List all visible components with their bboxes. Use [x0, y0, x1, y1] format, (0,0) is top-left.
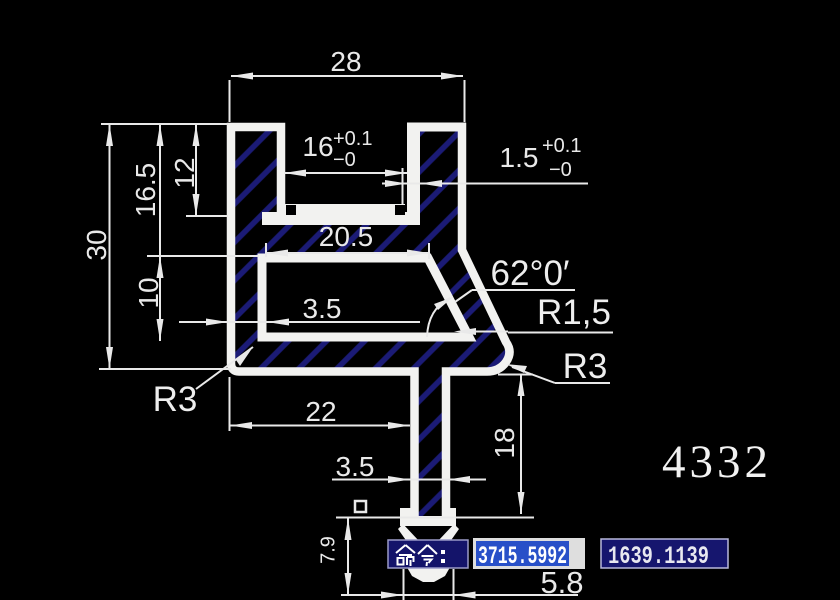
- svg-text:3.5: 3.5: [303, 293, 342, 324]
- svg-text:R1,5: R1,5: [537, 293, 611, 332]
- svg-text:10: 10: [133, 277, 164, 308]
- svg-text:4332: 4332: [662, 436, 772, 488]
- svg-text:20.5: 20.5: [319, 221, 374, 252]
- svg-text:1639.1139: 1639.1139: [608, 542, 709, 571]
- svg-text:−0: −0: [549, 159, 572, 181]
- svg-text:3715.5992: 3715.5992: [478, 542, 567, 571]
- svg-text:30: 30: [81, 229, 112, 260]
- svg-text:28: 28: [330, 46, 361, 77]
- svg-text:+0.1: +0.1: [333, 128, 372, 150]
- svg-text:R3: R3: [563, 347, 608, 386]
- svg-text:22: 22: [305, 396, 336, 427]
- svg-text:1.5: 1.5: [500, 142, 539, 173]
- svg-text:7.9: 7.9: [318, 536, 340, 564]
- svg-text:R3: R3: [153, 380, 198, 419]
- svg-text:16: 16: [302, 131, 333, 162]
- svg-text:16.5: 16.5: [130, 163, 161, 218]
- svg-text:+0.1: +0.1: [542, 135, 581, 157]
- svg-text:−0: −0: [333, 149, 356, 171]
- svg-text:18: 18: [489, 427, 520, 458]
- svg-text:3.5: 3.5: [336, 451, 375, 482]
- svg-text:12: 12: [169, 157, 200, 188]
- svg-text:62°0′: 62°0′: [491, 254, 570, 293]
